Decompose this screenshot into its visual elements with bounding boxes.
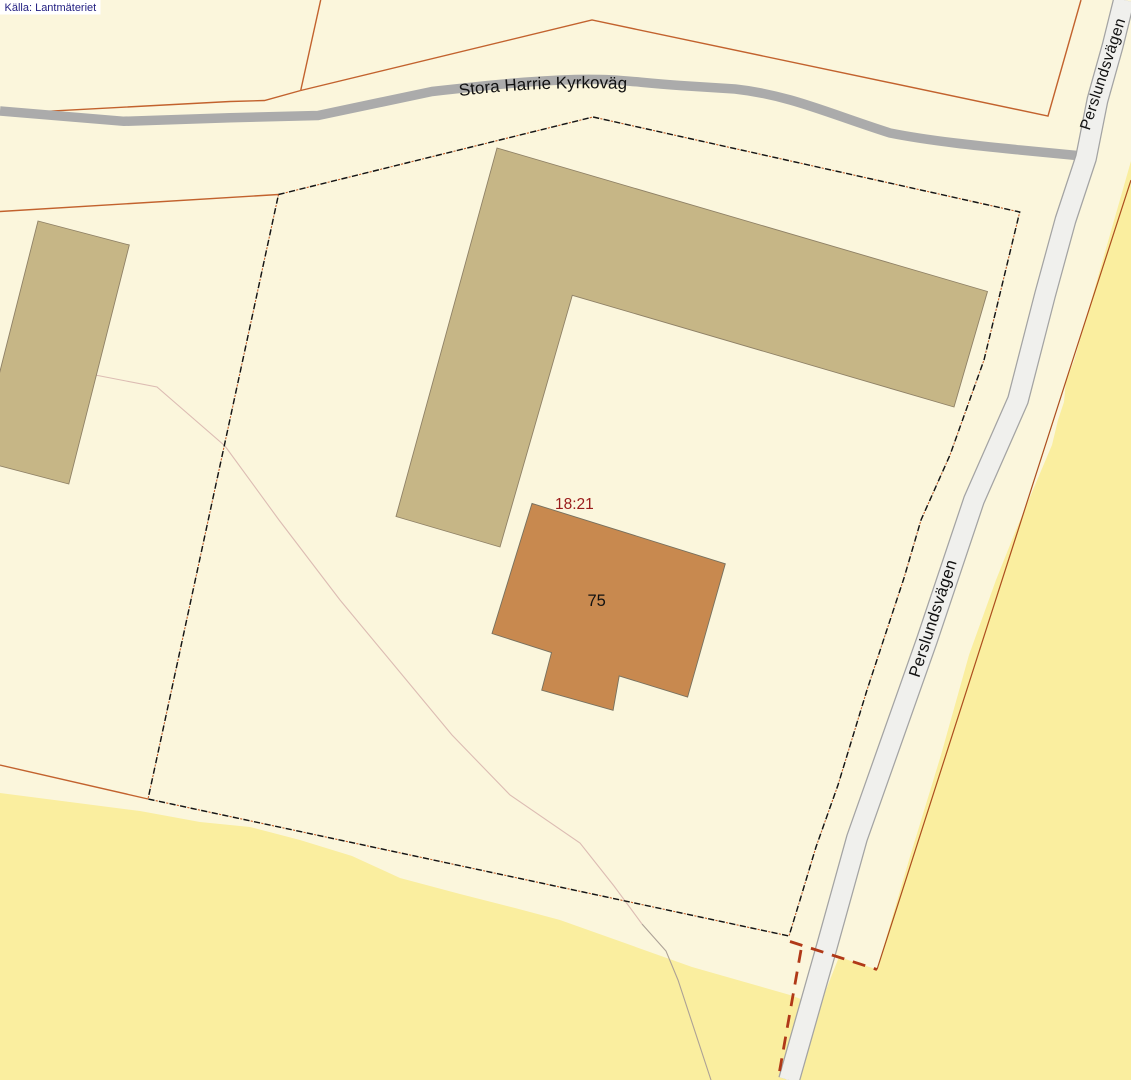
svg-text:18:21: 18:21 bbox=[555, 496, 594, 513]
svg-text:Källa: Lantmäteriet: Källa: Lantmäteriet bbox=[5, 2, 97, 14]
svg-text:75: 75 bbox=[588, 592, 606, 610]
